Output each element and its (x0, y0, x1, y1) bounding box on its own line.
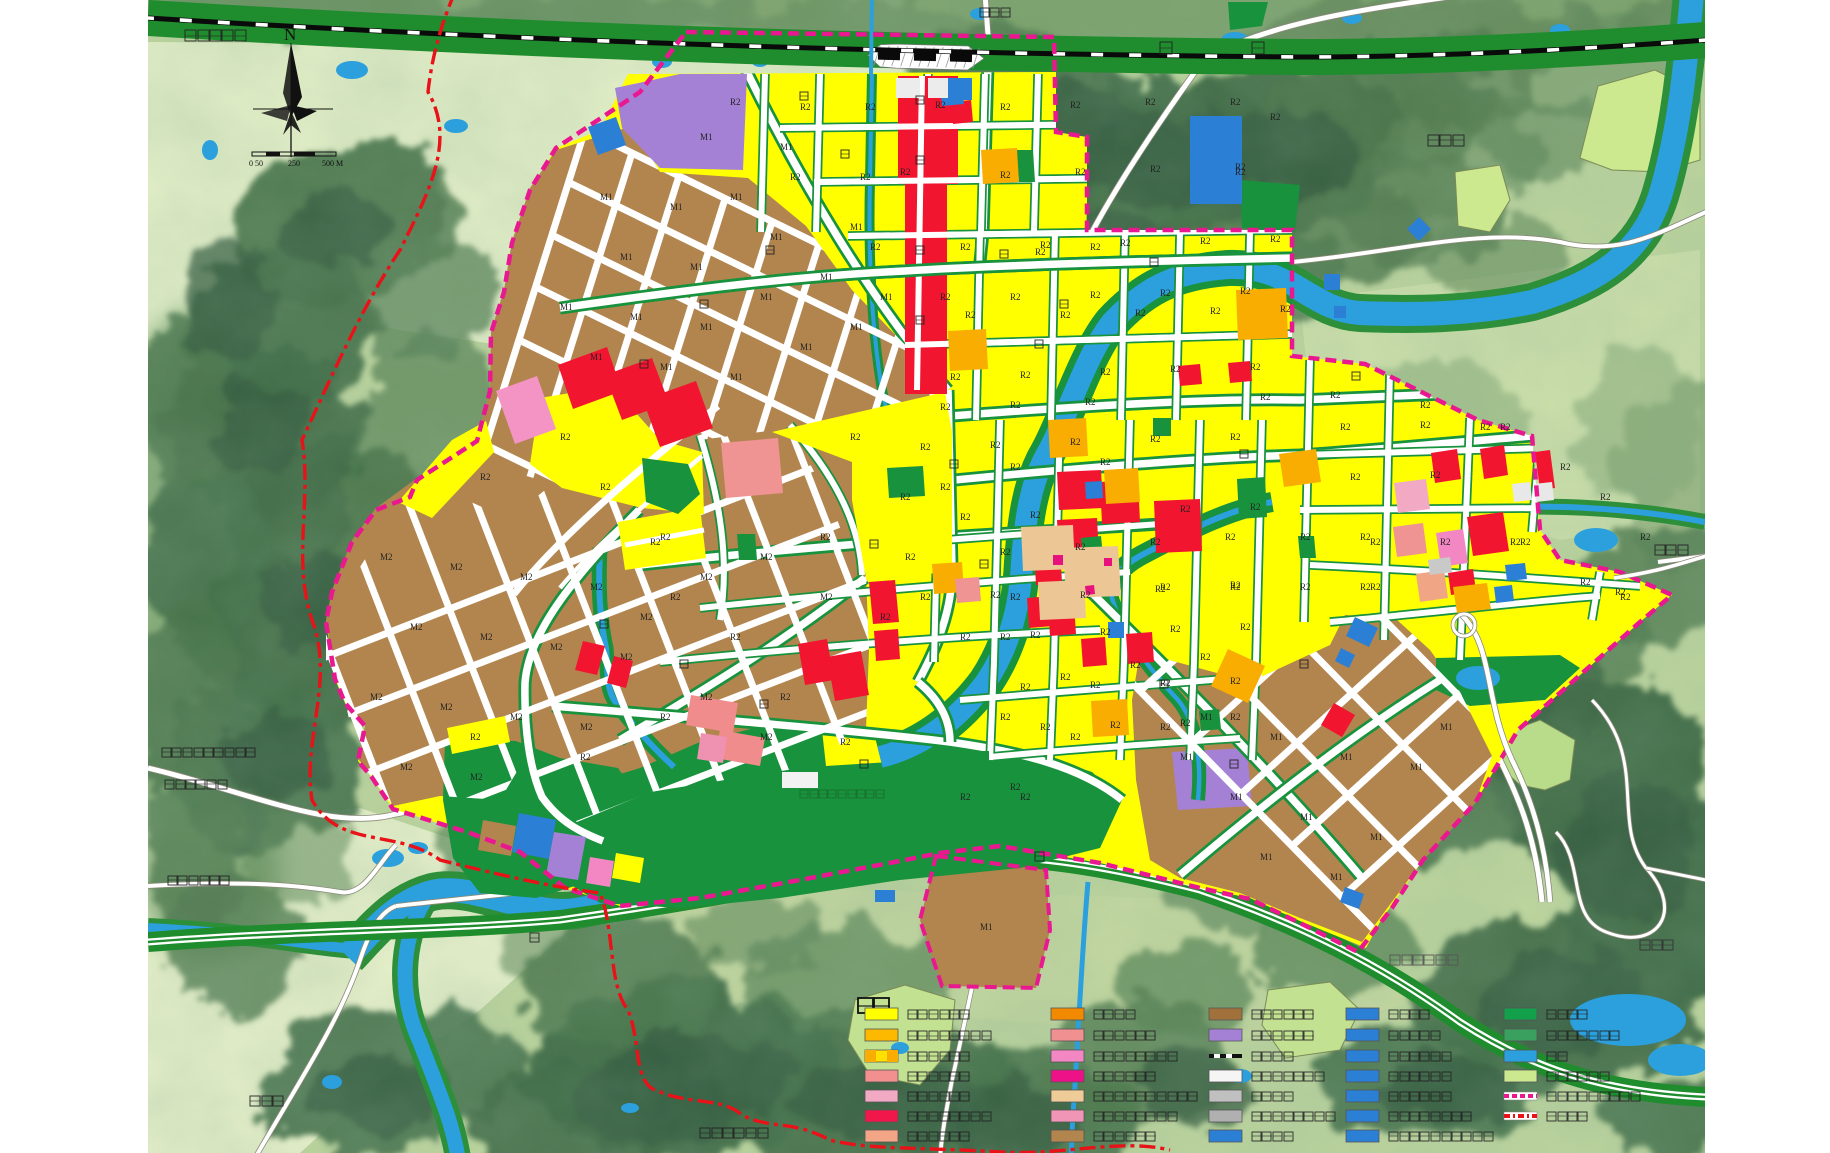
svg-text:R2: R2 (730, 97, 741, 107)
svg-text:R2: R2 (580, 752, 591, 762)
svg-text:R2: R2 (1160, 288, 1171, 298)
svg-text:R2: R2 (1040, 722, 1051, 732)
svg-text:R2: R2 (1300, 532, 1311, 542)
svg-text:R2: R2 (900, 167, 911, 177)
svg-text:R2: R2 (1200, 652, 1211, 662)
svg-text:R2: R2 (820, 532, 831, 542)
svg-text:R2: R2 (1020, 370, 1031, 380)
svg-text:R2: R2 (940, 402, 951, 412)
svg-text:M1: M1 (880, 292, 893, 302)
svg-text:R2: R2 (1145, 97, 1156, 107)
svg-text:R2: R2 (1240, 286, 1251, 296)
svg-text:M1: M1 (800, 342, 813, 352)
svg-text:R2: R2 (660, 712, 671, 722)
svg-text:M1: M1 (980, 922, 993, 932)
svg-text:R2: R2 (1230, 97, 1241, 107)
svg-text:R2: R2 (940, 482, 951, 492)
svg-text:M1: M1 (600, 192, 613, 202)
svg-text:M1: M1 (690, 262, 703, 272)
svg-text:R2: R2 (1135, 308, 1146, 318)
svg-text:R2: R2 (1020, 682, 1031, 692)
svg-text:R2: R2 (1360, 532, 1371, 542)
svg-text:R2: R2 (1090, 680, 1101, 690)
svg-text:M1: M1 (1370, 832, 1383, 842)
svg-text:R2: R2 (650, 537, 661, 547)
svg-text:R2: R2 (1160, 722, 1171, 732)
svg-text:R2: R2 (1420, 400, 1431, 410)
svg-text:R2: R2 (1615, 587, 1626, 597)
svg-text:M1: M1 (730, 372, 743, 382)
svg-text:R2: R2 (1225, 532, 1236, 542)
svg-text:R2: R2 (1230, 712, 1241, 722)
svg-text:R2: R2 (1170, 624, 1181, 634)
svg-text:500 M: 500 M (322, 159, 343, 168)
svg-text:M1: M1 (850, 222, 863, 232)
svg-text:M1: M1 (1410, 762, 1423, 772)
svg-text:R2: R2 (1090, 242, 1101, 252)
svg-text:M1: M1 (1230, 792, 1243, 802)
svg-text:R2: R2 (1210, 306, 1221, 316)
svg-text:R2: R2 (920, 442, 931, 452)
svg-text:R2: R2 (1130, 660, 1141, 670)
svg-text:R2: R2 (1560, 462, 1571, 472)
svg-text:R2: R2 (790, 172, 801, 182)
svg-text:R2: R2 (1510, 537, 1521, 547)
svg-text:R2: R2 (1100, 627, 1111, 637)
svg-text:R2: R2 (880, 612, 891, 622)
svg-text:M1: M1 (1330, 872, 1343, 882)
svg-text:R2: R2 (470, 732, 481, 742)
svg-text:M2: M2 (640, 612, 653, 622)
svg-text:R2: R2 (1500, 422, 1511, 432)
svg-text:M2: M2 (440, 702, 453, 712)
svg-text:R2: R2 (900, 492, 911, 502)
svg-text:R2: R2 (1260, 392, 1271, 402)
svg-text:R2: R2 (1360, 582, 1371, 592)
svg-text:M1: M1 (820, 272, 833, 282)
svg-text:R2: R2 (1080, 590, 1091, 600)
svg-text:R2: R2 (1100, 457, 1111, 467)
svg-text:R2: R2 (1270, 112, 1281, 122)
svg-text:R2: R2 (1000, 102, 1011, 112)
svg-text:R2: R2 (1070, 732, 1081, 742)
svg-text:R2: R2 (1120, 238, 1131, 248)
svg-text:0 50: 0 50 (249, 159, 263, 168)
svg-text:M1: M1 (850, 322, 863, 332)
svg-text:M2: M2 (380, 552, 393, 562)
svg-text:R2: R2 (1170, 364, 1181, 374)
svg-text:M2: M2 (760, 732, 773, 742)
svg-text:M2: M2 (620, 652, 633, 662)
svg-text:R2: R2 (1035, 247, 1046, 257)
svg-text:R2: R2 (1250, 502, 1261, 512)
svg-text:M1: M1 (590, 352, 603, 362)
svg-text:M1: M1 (700, 132, 713, 142)
svg-text:R2: R2 (1010, 292, 1021, 302)
svg-text:R2: R2 (560, 432, 571, 442)
svg-text:M2: M2 (370, 692, 383, 702)
svg-text:M2: M2 (590, 582, 603, 592)
svg-text:R2: R2 (1250, 362, 1261, 372)
svg-text:R2: R2 (1350, 472, 1361, 482)
svg-text:M1: M1 (780, 142, 793, 152)
svg-text:R2: R2 (1075, 542, 1086, 552)
svg-text:R2: R2 (1640, 532, 1651, 542)
svg-text:R2: R2 (905, 552, 916, 562)
svg-text:M2: M2 (450, 562, 463, 572)
svg-text:M2: M2 (700, 692, 713, 702)
svg-text:R2: R2 (960, 242, 971, 252)
svg-text:R2: R2 (1420, 420, 1431, 430)
svg-text:M1: M1 (1260, 852, 1273, 862)
svg-text:R2: R2 (990, 590, 1001, 600)
svg-text:M2: M2 (480, 632, 493, 642)
svg-text:R2: R2 (1060, 672, 1071, 682)
svg-text:M2: M2 (700, 572, 713, 582)
svg-text:R2: R2 (1000, 547, 1011, 557)
svg-text:250: 250 (288, 159, 300, 168)
svg-text:R2: R2 (800, 102, 811, 112)
svg-text:R2: R2 (1000, 170, 1011, 180)
svg-text:R2: R2 (1580, 577, 1591, 587)
svg-text:M1: M1 (1180, 752, 1193, 762)
svg-text:R2: R2 (1150, 164, 1161, 174)
svg-text:M2: M2 (760, 552, 773, 562)
svg-text:R2: R2 (1085, 397, 1096, 407)
svg-text:M1: M1 (560, 302, 573, 312)
svg-text:M1: M1 (1200, 712, 1213, 722)
svg-text:R2: R2 (860, 172, 871, 182)
svg-text:M2: M2 (550, 642, 563, 652)
svg-text:R2: R2 (1070, 437, 1081, 447)
svg-text:R2: R2 (960, 632, 971, 642)
svg-text:R2: R2 (1030, 510, 1041, 520)
svg-text:M2: M2 (470, 772, 483, 782)
svg-text:N: N (284, 25, 296, 44)
svg-text:R2: R2 (1010, 782, 1021, 792)
svg-text:R2: R2 (480, 472, 491, 482)
svg-text:R2: R2 (1230, 582, 1241, 592)
svg-text:M2: M2 (400, 762, 413, 772)
svg-text:R2: R2 (865, 102, 876, 112)
svg-text:R2: R2 (1440, 537, 1451, 547)
svg-text:R2: R2 (1000, 712, 1011, 722)
svg-text:R2: R2 (1155, 584, 1166, 594)
svg-text:R2: R2 (1235, 167, 1246, 177)
svg-text:R2: R2 (1075, 167, 1086, 177)
svg-text:R2: R2 (1480, 422, 1491, 432)
svg-text:R2: R2 (1300, 582, 1311, 592)
svg-text:R2: R2 (1010, 592, 1021, 602)
svg-text:R2: R2 (1330, 390, 1341, 400)
svg-text:R2: R2 (870, 242, 881, 252)
svg-text:R2: R2 (1090, 290, 1101, 300)
svg-text:R2: R2 (1150, 434, 1161, 444)
svg-text:M1: M1 (730, 192, 743, 202)
svg-text:R2: R2 (1070, 100, 1081, 110)
svg-text:R2: R2 (780, 692, 791, 702)
svg-text:R2: R2 (1020, 792, 1031, 802)
svg-text:M1: M1 (1440, 722, 1453, 732)
svg-text:R2: R2 (850, 432, 861, 442)
svg-text:R2: R2 (1010, 400, 1021, 410)
svg-text:M1: M1 (660, 362, 673, 372)
svg-text:R2: R2 (1100, 367, 1111, 377)
svg-text:R2: R2 (935, 100, 946, 110)
svg-text:R2: R2 (600, 482, 611, 492)
svg-text:R2: R2 (1230, 676, 1241, 686)
svg-text:M1: M1 (620, 252, 633, 262)
svg-text:M1: M1 (630, 312, 643, 322)
svg-text:R2: R2 (965, 310, 976, 320)
svg-text:M2: M2 (510, 712, 523, 722)
svg-text:M2: M2 (520, 572, 533, 582)
svg-text:R2: R2 (1430, 470, 1441, 480)
svg-text:R2: R2 (1370, 537, 1381, 547)
svg-text:R2: R2 (950, 372, 961, 382)
svg-text:R2: R2 (1230, 432, 1241, 442)
svg-text:R2: R2 (1160, 678, 1171, 688)
svg-text:R2: R2 (1150, 537, 1161, 547)
svg-text:M1: M1 (1300, 812, 1313, 822)
svg-text:R2: R2 (1180, 504, 1191, 514)
svg-text:R2: R2 (730, 632, 741, 642)
svg-text:M1: M1 (760, 292, 773, 302)
svg-text:R2: R2 (990, 440, 1001, 450)
svg-text:R2: R2 (960, 792, 971, 802)
svg-text:R2: R2 (920, 592, 931, 602)
svg-text:M1: M1 (1270, 732, 1283, 742)
svg-text:R2: R2 (1200, 236, 1211, 246)
svg-text:R2: R2 (1240, 622, 1251, 632)
svg-text:R2: R2 (840, 737, 851, 747)
svg-text:R2: R2 (1520, 537, 1531, 547)
svg-text:M1: M1 (700, 322, 713, 332)
svg-text:M2: M2 (410, 622, 423, 632)
svg-text:M2: M2 (820, 592, 833, 602)
svg-text:R2: R2 (960, 512, 971, 522)
svg-text:M1: M1 (670, 202, 683, 212)
svg-text:M2: M2 (580, 722, 593, 732)
svg-text:R2: R2 (1270, 234, 1281, 244)
svg-text:M1: M1 (770, 232, 783, 242)
svg-text:R2: R2 (1000, 632, 1011, 642)
svg-text:R2: R2 (1600, 492, 1611, 502)
svg-text:R2: R2 (1180, 718, 1191, 728)
svg-text:R2: R2 (1030, 630, 1041, 640)
svg-text:M1: M1 (1340, 752, 1353, 762)
svg-text:R2: R2 (1060, 310, 1071, 320)
svg-text:R2: R2 (660, 532, 671, 542)
svg-text:R2: R2 (1110, 720, 1121, 730)
svg-text:R2: R2 (1280, 304, 1291, 314)
svg-text:R2: R2 (940, 292, 951, 302)
svg-text:R2: R2 (1010, 462, 1021, 472)
svg-text:R2: R2 (1340, 422, 1351, 432)
svg-text:R2: R2 (1370, 582, 1381, 592)
svg-text:R2: R2 (670, 592, 681, 602)
